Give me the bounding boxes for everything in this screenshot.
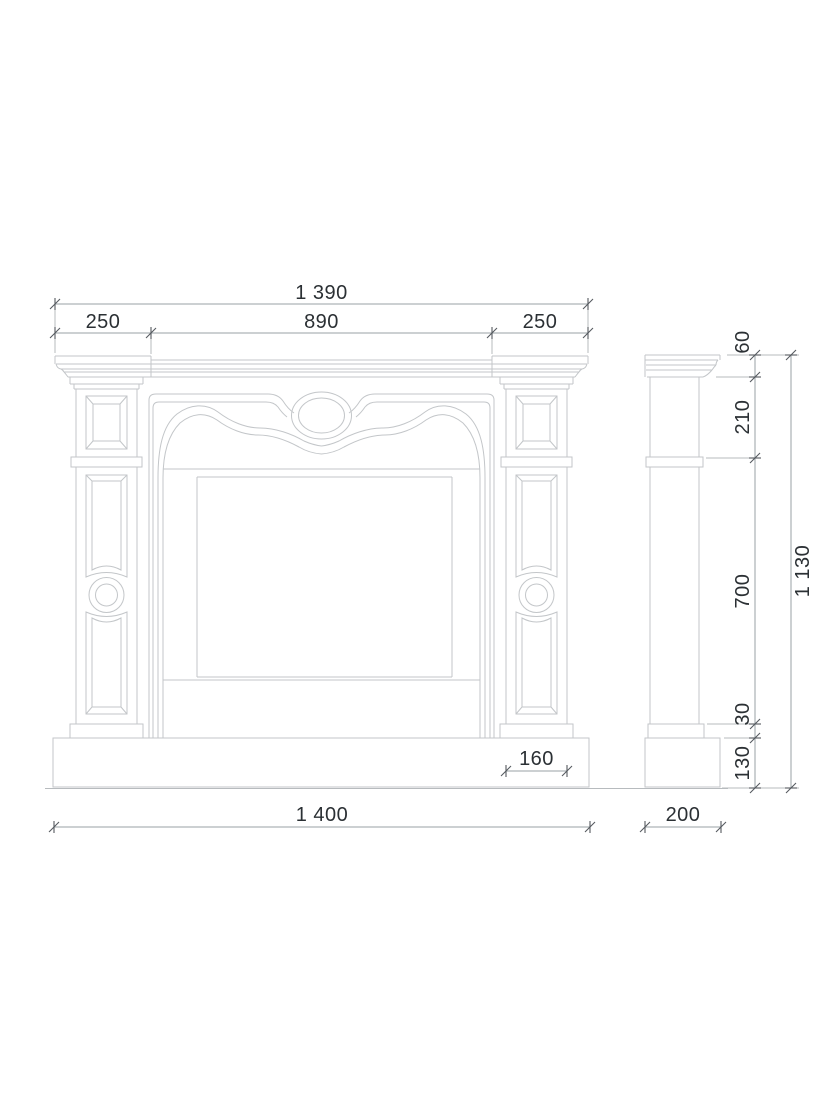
dim-label-top-center: 890 (304, 311, 339, 333)
frieze-medallion-inner (299, 398, 345, 433)
dim-label-top-right: 250 (523, 311, 558, 333)
left-pilaster-base (70, 724, 143, 738)
dim-label-bottom-front: 1 400 (296, 804, 349, 826)
left-medallion-ring (89, 578, 124, 613)
dim-bottom-side: 200 (640, 804, 726, 833)
side-view (645, 355, 720, 787)
drawing-canvas: 1 390 250 890 250 60 210 700 (0, 0, 840, 1120)
right-pilaster-base (500, 724, 573, 738)
left-pilaster-band (71, 457, 142, 467)
firebox-opening (163, 469, 480, 680)
right-pilaster (500, 377, 573, 738)
dim-bottom-front: 1 400 (49, 804, 595, 833)
left-medallion-core (96, 584, 118, 606)
right-medallion-core (526, 584, 548, 606)
dim-label-top-total: 1 390 (295, 282, 348, 304)
dim-label-side-base-step: 30 (732, 702, 754, 725)
dim-label-side-total: 1 130 (792, 545, 814, 598)
dim-label-side-leg: 700 (732, 574, 754, 609)
dim-label-side-plinth: 130 (732, 746, 754, 781)
side-shelf (645, 355, 720, 377)
side-base-step (648, 724, 704, 738)
frieze-ornament (149, 392, 494, 738)
technical-drawing: 1 390 250 890 250 60 210 700 (0, 0, 840, 1120)
front-view (53, 356, 589, 787)
side-column (650, 377, 699, 724)
dim-label-side-shelf: 60 (732, 330, 754, 353)
side-plinth (645, 738, 720, 787)
left-pilaster (70, 377, 143, 738)
dim-label-side-frieze: 210 (732, 400, 754, 435)
dim-label-pilaster-width: 160 (519, 748, 554, 770)
dim-label-bottom-side: 200 (666, 804, 701, 826)
front-plinth (53, 738, 589, 787)
dim-right-chain: 60 210 700 30 130 (706, 330, 799, 793)
dim-top-segments: 250 890 250 (50, 311, 593, 354)
right-medallion-ring (519, 578, 554, 613)
side-band (646, 457, 703, 467)
right-pilaster-band (501, 457, 572, 467)
dim-label-top-left: 250 (86, 311, 121, 333)
frieze-medallion-outer (292, 392, 352, 439)
dim-right-total: 1 130 (785, 350, 814, 793)
mantel-shelf (55, 356, 588, 377)
